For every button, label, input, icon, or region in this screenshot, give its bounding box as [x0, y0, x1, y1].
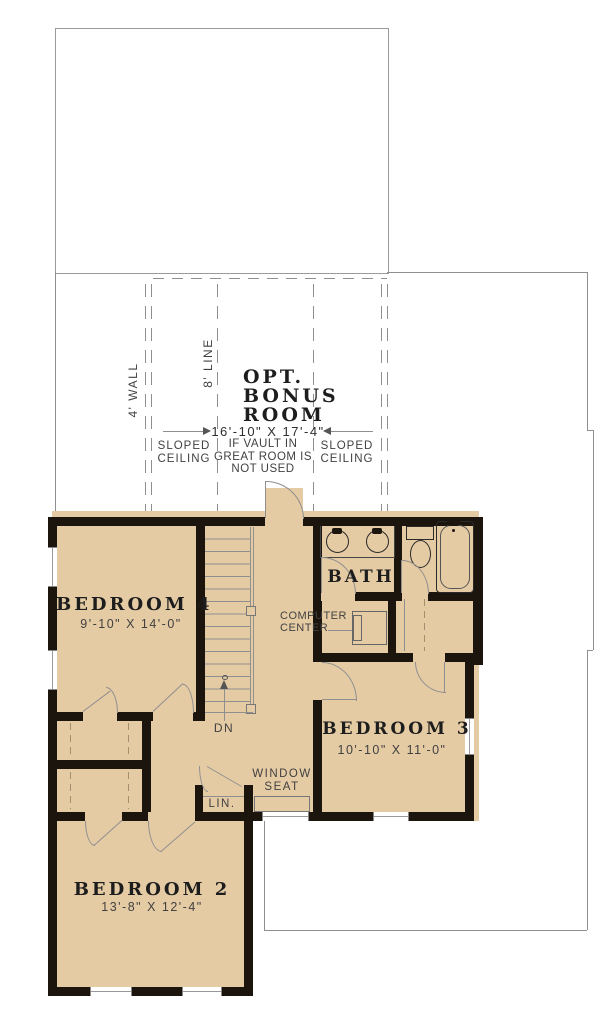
opening-bedroom3-closet — [413, 653, 445, 662]
roof-outline-bottom — [264, 930, 587, 931]
floor-plan: OPT. BONUS ROOM 16'-10" X 17'-4" IF VAUL… — [0, 0, 600, 1024]
closet3-shelf-line — [404, 599, 405, 651]
window-seat-bench — [254, 796, 310, 812]
roof-outline-top-right — [387, 272, 587, 273]
room-dims-bedroom4: 9'-10" X 14'-0" — [56, 617, 206, 631]
bonus-note-line2: GREAT ROOM IS — [198, 451, 328, 464]
bonus-room-note: IF VAULT IN GREAT ROOM IS NOT USED — [198, 438, 328, 476]
opening-bedroom4-closet — [83, 712, 117, 721]
roof-outline-right-3 — [587, 650, 588, 930]
roof-outline-right-2 — [593, 430, 594, 650]
opening-bedroom4-entry — [153, 712, 193, 721]
toilet-tank-icon — [406, 526, 434, 540]
roof-outline-bottom-left — [264, 821, 265, 930]
opening-bedroom2-closet — [85, 812, 122, 821]
closet-rod-a1 — [70, 723, 71, 756]
room-label-bath: BATH — [311, 567, 411, 587]
opening-bedroom2-entry — [148, 812, 195, 821]
computer-desk-chair — [353, 615, 362, 641]
arrow-right-icon — [203, 427, 211, 435]
tub-faucet — [447, 521, 460, 526]
tub-inner-line — [440, 525, 470, 589]
wall-closet-divider — [48, 760, 148, 769]
sink-faucet-2 — [372, 528, 382, 534]
dn-arrow-icon — [220, 680, 228, 689]
closet-rod-b2 — [128, 772, 129, 809]
window-seat-label: WINDOW SEAT — [252, 768, 312, 794]
window-bedroom2-2 — [182, 987, 222, 996]
closet3-rod — [424, 599, 425, 651]
computer-line2: CENTER — [280, 622, 350, 634]
bonus-note-line1: IF VAULT IN — [198, 438, 328, 451]
wall-4ft-label: 4' WALL — [103, 360, 163, 420]
window-bedroom4-left-1 — [48, 547, 57, 587]
sloped-left-line1: SLOPED — [155, 440, 213, 453]
dn-arrow-line — [224, 688, 225, 721]
linen-shelf-line — [203, 796, 244, 797]
room-dims-bedroom2: 13'-8" X 12'-4" — [62, 900, 242, 914]
window-bedroom4-left-2 — [48, 650, 57, 690]
roof-outline-upper — [55, 28, 389, 274]
opening-bedroom3-entry — [313, 662, 322, 700]
room-dims-bedroom3: 10'-10" X 11'-0" — [312, 743, 472, 757]
roof-outline-right-1 — [587, 272, 588, 430]
bonus-room-title: OPT. BONUS ROOM — [243, 368, 339, 425]
room-label-bedroom2: BEDROOM 2 — [62, 879, 242, 900]
door-arc — [266, 481, 304, 519]
wall-bedroom2-bottom — [48, 987, 253, 996]
roof-outline-left — [55, 272, 56, 517]
dn-label: DN — [204, 721, 244, 735]
wall-closet-right — [142, 712, 151, 821]
window-bedroom3-bottom — [373, 812, 409, 821]
sloped-right-line1: SLOPED — [318, 440, 376, 453]
closet-rod-a2 — [128, 723, 129, 756]
wall-nook-bottom — [313, 653, 396, 662]
computer-line1: COMPUTER — [280, 610, 350, 622]
room-label-bedroom3: BEDROOM 3 — [312, 719, 482, 739]
window-bedroom2-1 — [90, 987, 132, 996]
window-seat-line2: SEAT — [252, 781, 312, 794]
stair-bottom-edge — [205, 712, 253, 713]
room-label-bedroom4: BEDROOM 4 — [56, 594, 206, 615]
dn-arrow-dot — [222, 675, 228, 680]
bonus-dashed-right-a — [381, 284, 382, 511]
window-seat-line1: WINDOW — [252, 768, 312, 781]
bonus-dashed-top — [153, 278, 387, 279]
bonus-dashed-8ft-line — [217, 284, 218, 511]
stair-rail-inner — [250, 527, 251, 714]
bonus-note-line3: NOT USED — [198, 463, 328, 476]
sloped-ceiling-right-label: SLOPED CEILING — [318, 440, 376, 466]
sloped-arrow-left-line — [163, 431, 205, 432]
sloped-ceiling-left-label: SLOPED CEILING — [155, 440, 213, 466]
sloped-arrow-right-line — [331, 431, 373, 432]
stair-newel-top — [246, 606, 256, 616]
arrow-left-icon — [323, 427, 331, 435]
wall-right-upper — [473, 517, 483, 665]
stair-rail-outer — [253, 527, 254, 714]
bonus-dashed-right-b — [387, 284, 388, 511]
computer-center-label: COMPUTER CENTER — [280, 610, 350, 634]
tub-drain-dot — [452, 529, 455, 532]
sloped-right-line2: CEILING — [318, 453, 376, 466]
bonus-title-line3: ROOM — [243, 406, 339, 425]
sloped-left-line2: CEILING — [155, 453, 213, 466]
line-8ft-label: 8' LINE — [178, 333, 238, 393]
sink-faucet-1 — [332, 528, 342, 534]
closet-rod-b1 — [70, 772, 71, 809]
linen-label: LIN. — [202, 798, 242, 810]
window-seat-window — [262, 812, 309, 821]
wall-left — [48, 517, 57, 996]
